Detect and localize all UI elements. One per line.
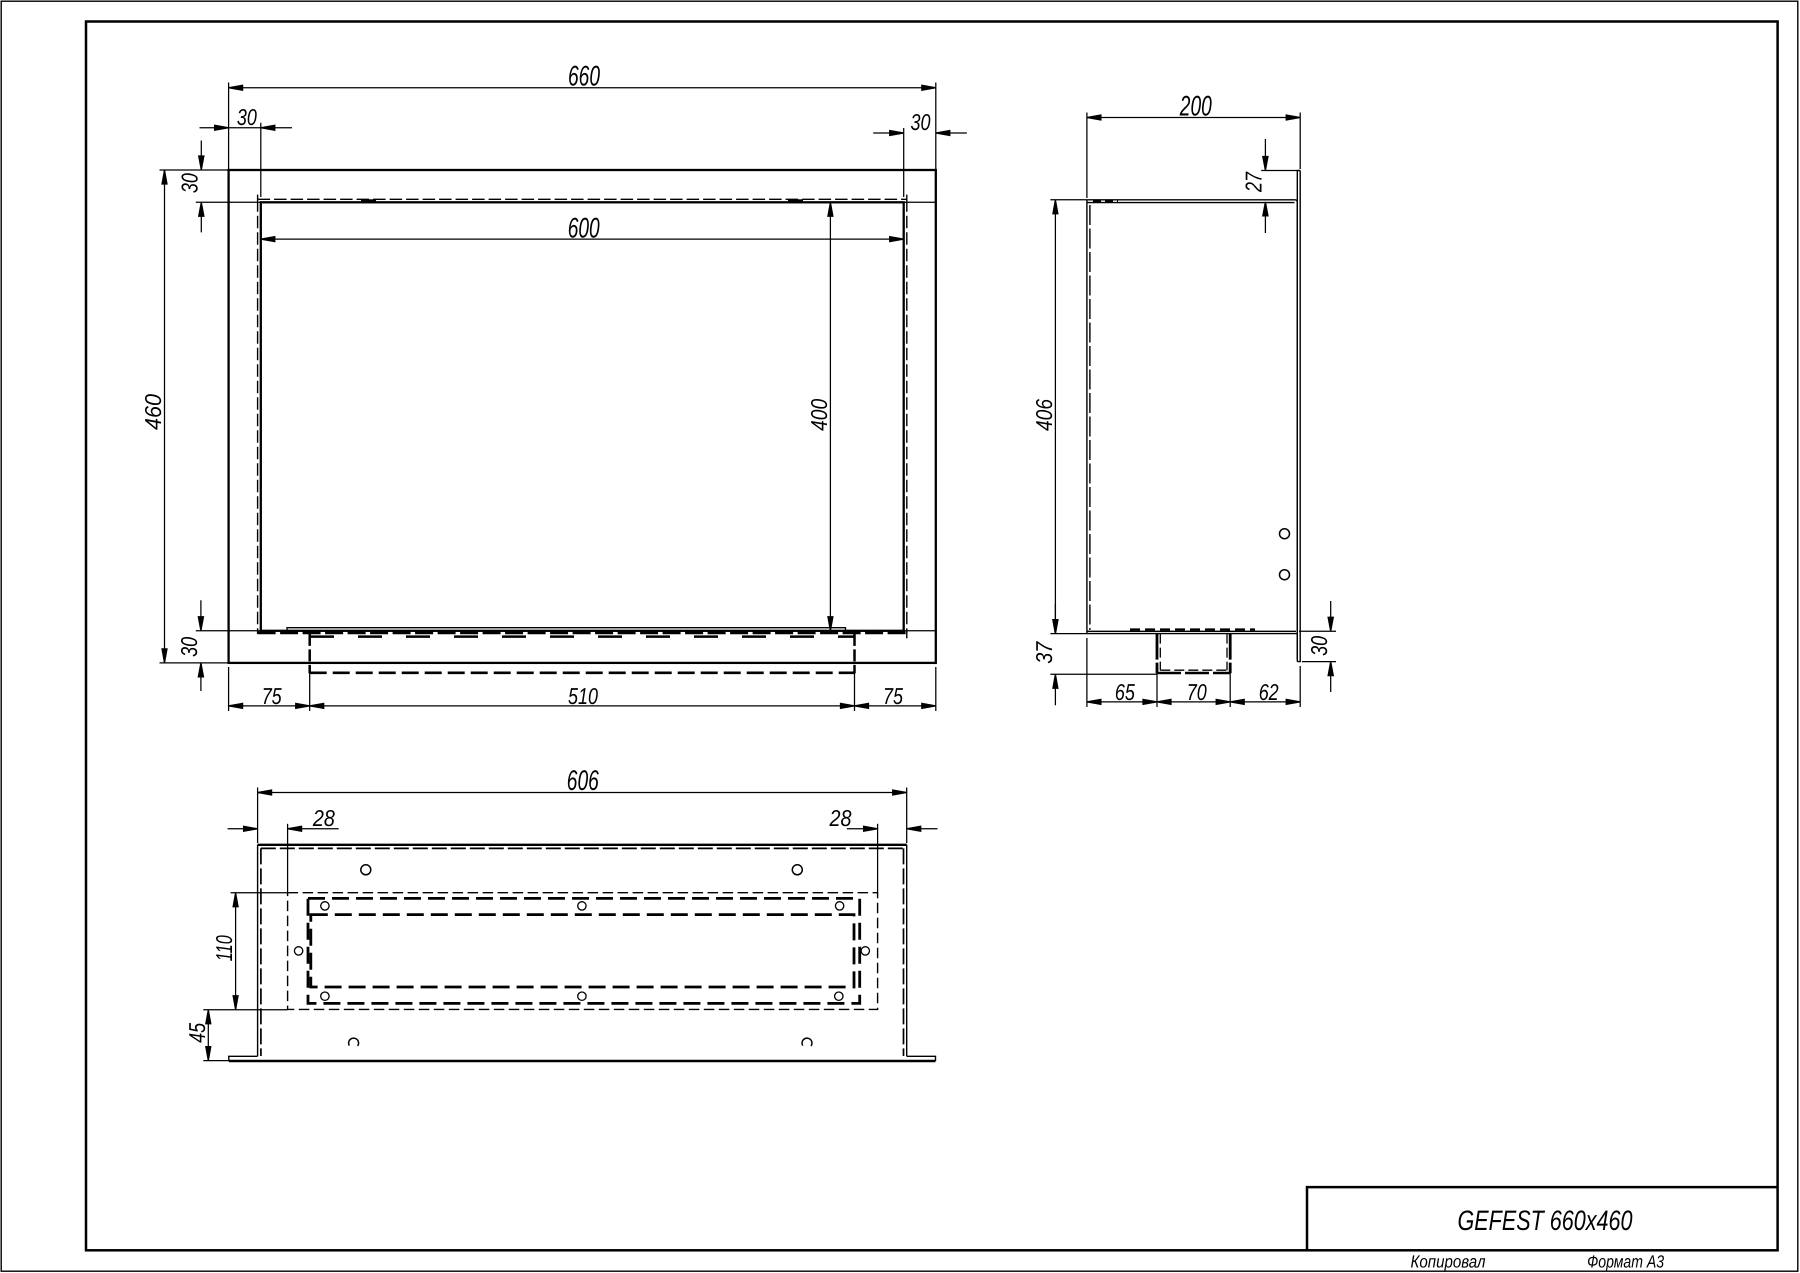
svg-text:406: 406 bbox=[1031, 399, 1057, 431]
svg-text:28: 28 bbox=[312, 805, 335, 831]
svg-text:75: 75 bbox=[262, 683, 282, 709]
svg-text:Формат А3: Формат А3 bbox=[1587, 1251, 1664, 1271]
svg-text:Копировал: Копировал bbox=[1411, 1251, 1486, 1271]
svg-text:65: 65 bbox=[1115, 679, 1135, 705]
svg-text:660: 660 bbox=[568, 61, 600, 93]
svg-text:110: 110 bbox=[211, 935, 237, 961]
svg-text:30: 30 bbox=[1306, 636, 1332, 656]
svg-text:460: 460 bbox=[140, 394, 166, 430]
svg-text:400: 400 bbox=[806, 399, 832, 431]
svg-text:GEFEST 660x460: GEFEST 660x460 bbox=[1458, 1204, 1633, 1236]
svg-text:70: 70 bbox=[1187, 679, 1207, 705]
svg-text:200: 200 bbox=[1179, 90, 1212, 122]
svg-text:37: 37 bbox=[1031, 641, 1057, 664]
svg-text:45: 45 bbox=[184, 1023, 210, 1043]
svg-text:62: 62 bbox=[1259, 679, 1279, 705]
svg-text:600: 600 bbox=[568, 212, 600, 244]
svg-text:30: 30 bbox=[176, 637, 202, 657]
svg-text:30: 30 bbox=[176, 173, 202, 193]
svg-text:510: 510 bbox=[568, 683, 598, 709]
svg-text:27: 27 bbox=[1241, 171, 1267, 193]
svg-text:75: 75 bbox=[883, 683, 903, 709]
svg-text:30: 30 bbox=[911, 109, 931, 135]
svg-text:28: 28 bbox=[829, 805, 852, 831]
svg-text:30: 30 bbox=[237, 104, 257, 130]
svg-text:606: 606 bbox=[567, 765, 599, 797]
